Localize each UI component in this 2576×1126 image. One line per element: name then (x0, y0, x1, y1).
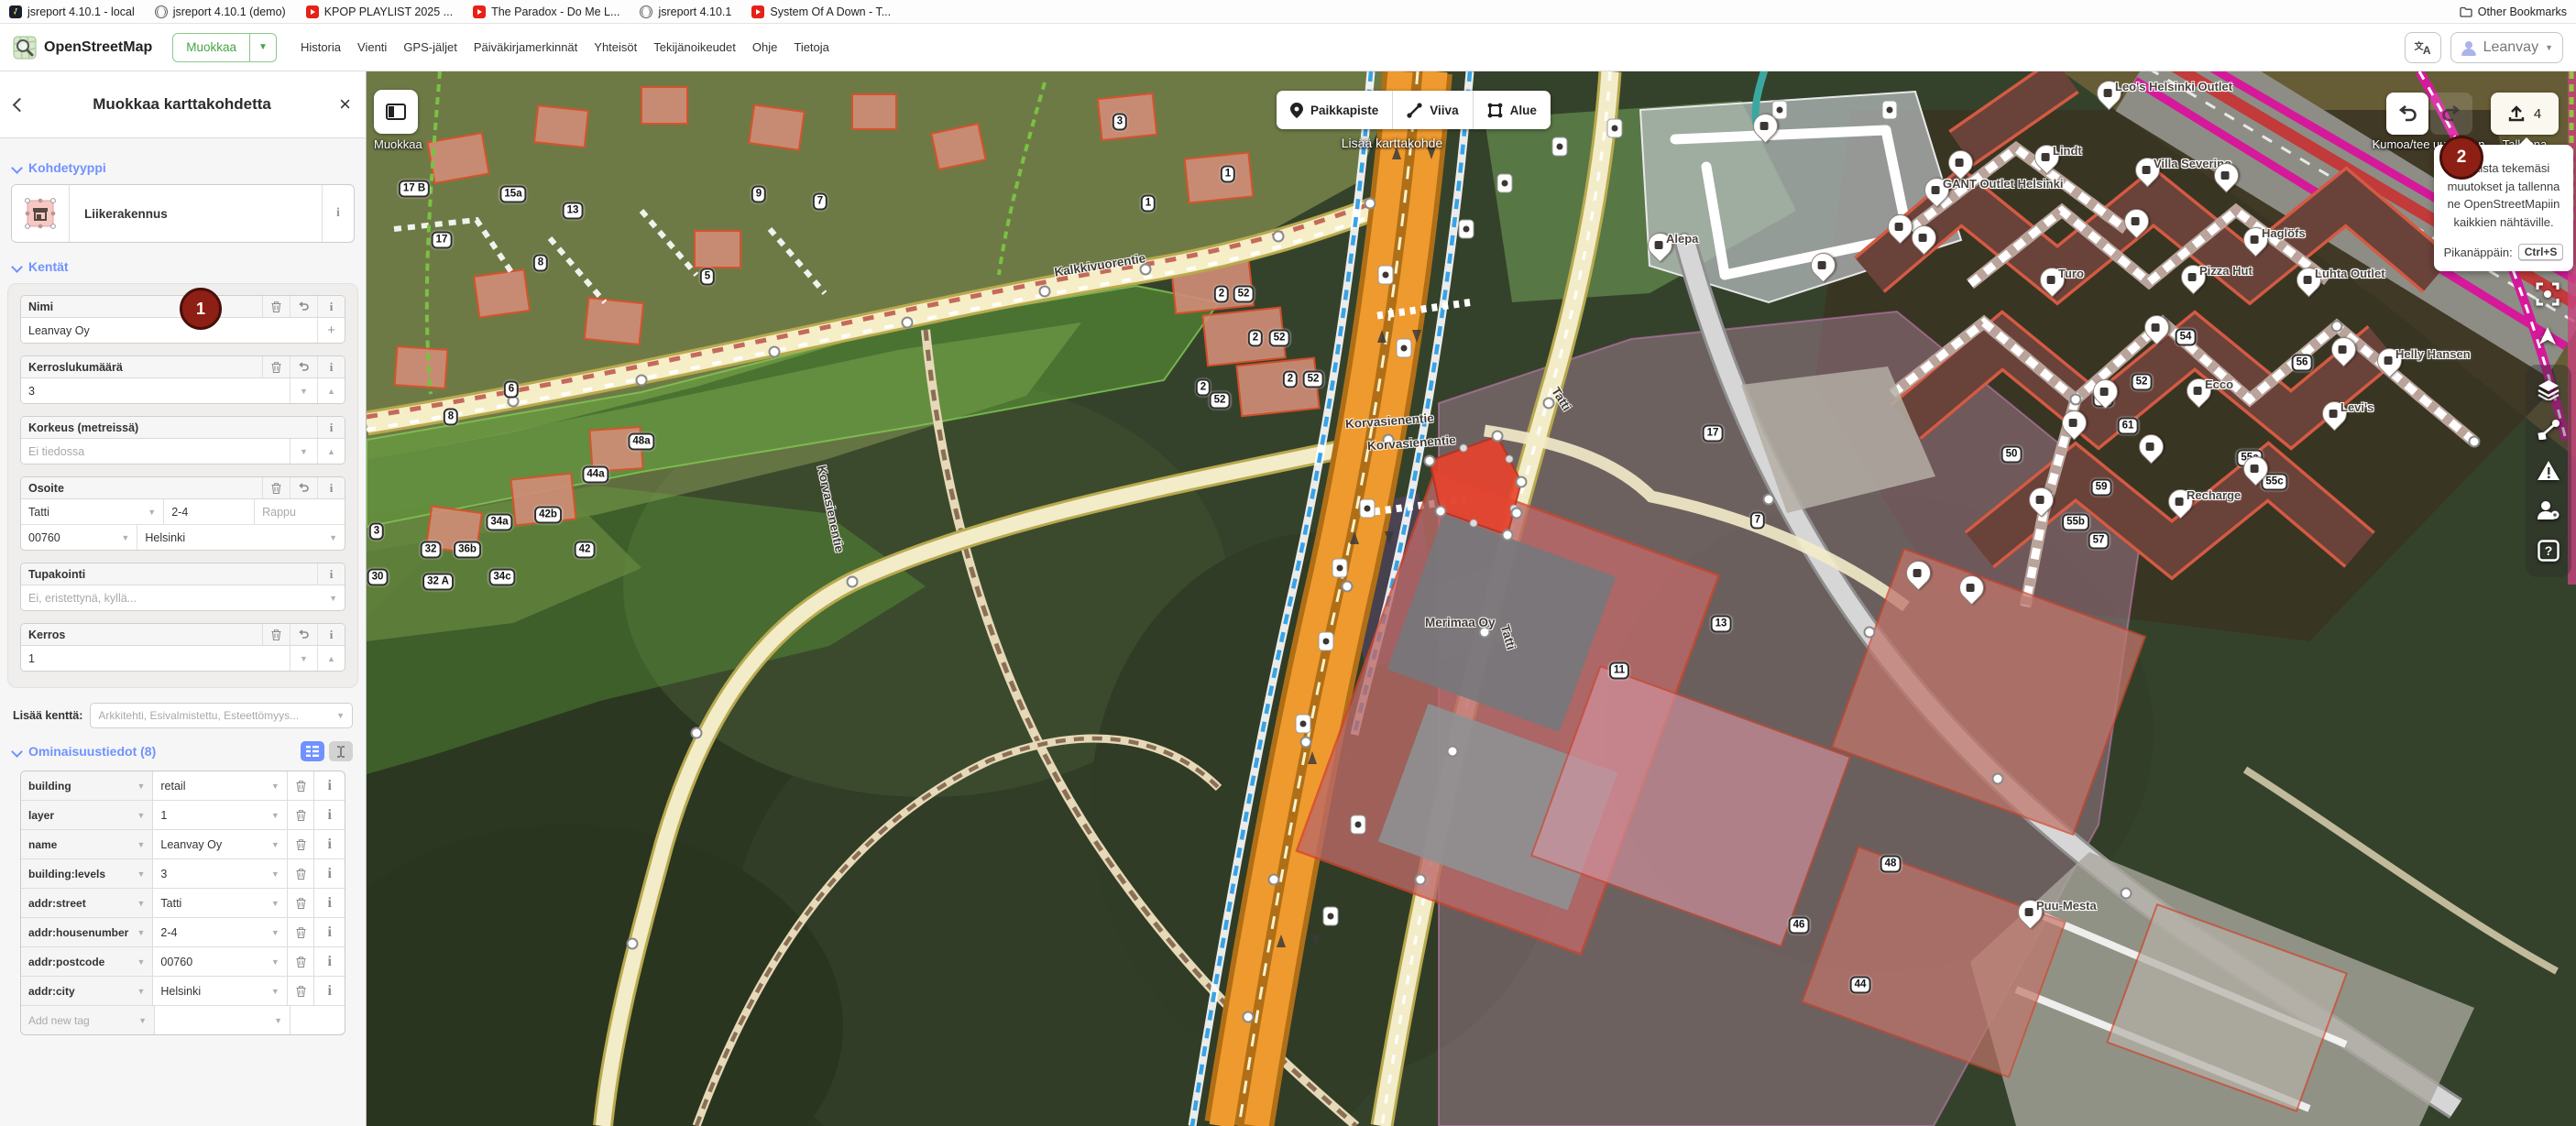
housenumber-badge: 42b (534, 507, 562, 524)
levels-input[interactable]: 3 (21, 378, 290, 403)
unit-input[interactable]: Rappu (255, 499, 345, 524)
bookmark-item[interactable]: jsreport 4.10.1 (demo) (155, 5, 286, 18)
chevron-down-icon: ▼ (2545, 43, 2553, 52)
section-feature-type[interactable]: Kohdetyyppi (13, 160, 353, 175)
delete-tag-button[interactable] (288, 918, 315, 946)
housenumber-badge: 42 (575, 541, 596, 559)
header-nav-item[interactable]: Tekijänoikeudet (653, 40, 736, 54)
bookmark-item[interactable]: System Of A Down - T... (751, 5, 891, 18)
housenumber-badge: 2 (1283, 371, 1298, 388)
add-field-label: Lisää kenttä: (13, 709, 82, 722)
housenumber-badge: 7 (813, 193, 828, 211)
chevron-down-icon (11, 746, 23, 758)
poi-label: Pizza Hut (2199, 264, 2253, 278)
walkthrough-step-1-badge: 1 (180, 288, 222, 330)
header-nav-item[interactable]: Historia (301, 40, 341, 54)
geolocate-button[interactable] (2527, 317, 2568, 355)
tag-table-view-button[interactable] (301, 741, 324, 761)
section-tags[interactable]: Ominaisuustiedot (8) (13, 744, 156, 759)
tag-row: layer▼1▼i (21, 801, 345, 830)
youtube-icon (473, 5, 486, 18)
bookmark-item[interactable]: jsreport 4.10.1 (640, 5, 731, 18)
upload-icon (2508, 105, 2525, 122)
point-icon (1290, 103, 1303, 118)
decrement-button[interactable]: ▼ (290, 378, 317, 403)
add-area-button[interactable]: Alue (1474, 91, 1551, 129)
zoom-to-selection-button[interactable] (2527, 275, 2568, 313)
undo-icon (2396, 105, 2418, 122)
housenumber-badge: 52 (2132, 374, 2153, 391)
housenumber-badge: 52 (1303, 371, 1324, 388)
tag-row: building:levels▼3▼i (21, 859, 345, 889)
housenumber-badge: 3 (369, 523, 384, 541)
delete-tag-button[interactable] (288, 947, 315, 976)
tag-row: addr:postcode▼00760▼i (21, 947, 345, 977)
name-input[interactable]: Leanvay Oy (21, 318, 317, 343)
housenumber-badge: 52 (1233, 286, 1255, 303)
shortcut-label: Pikanäppäin: (2444, 246, 2513, 259)
section-fields[interactable]: Kentät (13, 259, 353, 274)
translate-icon: 文A (2415, 40, 2431, 55)
street-label: Merimaa Oy (1425, 616, 1496, 629)
add-feature-toolbar: Paikkapiste Viiva Alue (1277, 91, 1551, 129)
line-icon (1407, 103, 1422, 118)
housenumber-badge: 11 (1609, 662, 1629, 680)
housenumber-input[interactable]: 2-4 (164, 499, 255, 524)
delete-tag-button[interactable] (288, 977, 315, 1005)
housenumber-badge: 13 (1711, 616, 1732, 633)
poi-label: Turo (2058, 267, 2084, 280)
other-bookmarks-button[interactable]: Other Bookmarks (2460, 5, 2567, 18)
tag-row: Add new tag▼▼ (21, 1006, 345, 1034)
field-building-levels: Kerroslukumäärä i 3 ▼ ▲ (20, 355, 345, 404)
poi-label: Luhta Outlet (2315, 267, 2385, 280)
youtube-icon (751, 5, 764, 18)
increment-button[interactable]: ▲ (317, 646, 345, 671)
preferences-button[interactable] (2528, 491, 2569, 530)
youtube-icon (306, 5, 319, 18)
tag-info-button[interactable]: i (314, 801, 345, 829)
openstreetmap-logo (13, 36, 37, 60)
increment-button[interactable]: ▲ (317, 378, 345, 403)
redo-button[interactable] (2430, 93, 2472, 135)
app-window: KalkkivuorentieKorvasienentieKorvasienen… (0, 0, 2576, 1126)
delete-tag-button[interactable] (288, 771, 315, 800)
tag-text-view-button[interactable] (329, 741, 353, 761)
tag-value-select[interactable]: Leanvay Oy▼ (153, 830, 287, 858)
delete-tag-button[interactable] (288, 859, 315, 888)
background-layers-button[interactable] (2528, 370, 2569, 409)
header-nav: HistoriaVientiGPS-jäljetPäiväkirjamerkin… (301, 40, 829, 54)
field-height: Korkeus (metreissä) i Ei tiedossa ▼ ▲ (20, 416, 345, 465)
preset-label: Liikerakennus (70, 185, 322, 242)
chevron-down-icon (11, 162, 23, 174)
postcode-select[interactable]: 00760▼ (21, 525, 137, 550)
tag-info-button[interactable]: i (314, 771, 345, 800)
housenumber-badge: 7 (1750, 512, 1765, 530)
tag-row: addr:street▼Tatti▼i (21, 889, 345, 918)
tag-value-select[interactable]: 00760▼ (153, 947, 287, 976)
edit-entity-panel: Muokkaa karttakohdetta × Kohdetyyppi (0, 71, 367, 1126)
tag-row: addr:city▼Helsinki▼i (21, 977, 345, 1006)
tag-row: addr:housenumber▼2-4▼i (21, 918, 345, 947)
housenumber-badge: 13 (563, 202, 584, 220)
tag-value-select[interactable]: Tatti▼ (153, 889, 287, 917)
edit-dropdown-caret[interactable]: ▼ (249, 34, 276, 61)
tag-key-select[interactable]: building:levels▼ (21, 859, 153, 888)
poi-label: Leo's Helsinki Outlet (2115, 80, 2232, 93)
tag-value-select[interactable]: 3▼ (153, 859, 287, 888)
svg-text:?: ? (2545, 543, 2553, 558)
globe-icon (640, 5, 652, 18)
housenumber-badge: 44a (582, 466, 608, 484)
housenumber-badge: 17 (432, 232, 453, 249)
field-info-button[interactable]: i (317, 296, 345, 317)
delete-field-button[interactable] (262, 624, 290, 645)
street-select[interactable]: Tatti▼ (21, 499, 164, 524)
poi-label: Alepa (1666, 232, 1698, 246)
housenumber-badge: 46 (1789, 917, 1810, 935)
housenumber-badge: 55b (2062, 514, 2089, 531)
level-input[interactable]: 1 (21, 646, 290, 671)
add-feature-hint: Lisää karttakohde (1277, 136, 1507, 150)
tag-row: name▼Leanvay Oy▼i (21, 830, 345, 859)
housenumber-badge: 2 (1248, 330, 1263, 347)
header-nav-item[interactable]: Päiväkirjamerkinnät (474, 40, 577, 54)
map-data-button[interactable] (2528, 410, 2569, 449)
tag-info-button[interactable]: i (314, 947, 345, 976)
housenumber-badge: 8 (444, 409, 458, 426)
sidebar-toggle-icon (386, 104, 406, 120)
poi-label: Recharge (2187, 488, 2241, 502)
issues-button[interactable] (2528, 451, 2569, 489)
undo-button[interactable] (2386, 93, 2428, 135)
delete-field-button[interactable] (262, 477, 290, 498)
height-input[interactable]: Ei tiedossa (21, 439, 290, 464)
city-select[interactable]: Helsinki▼ (137, 525, 345, 550)
poi-label: Lindt (2053, 144, 2082, 158)
panel-title: Muokkaa karttakohdetta (25, 95, 339, 114)
tag-table: building▼retail▼ilayer▼1▼iname▼Leanvay O… (20, 771, 345, 1035)
delete-tag-button[interactable] (288, 801, 315, 829)
sidebar-collapse-label: Muokkaa (374, 137, 418, 151)
tag-value-select[interactable]: 2-4▼ (153, 918, 287, 946)
tag-info-button[interactable]: i (314, 830, 345, 858)
poi-label: Levi's (2340, 400, 2373, 414)
header-nav-item[interactable]: Vienti (357, 40, 387, 54)
redo-icon (2440, 105, 2462, 122)
housenumber-badge: 9 (751, 186, 766, 203)
walkthrough-step-2-badge: 2 (2439, 136, 2483, 180)
tag-value-select[interactable]: retail▼ (153, 771, 287, 800)
smoking-select[interactable]: Ei, eristettynä, kyllä...▼ (21, 585, 345, 610)
osm-header: OpenStreetMap Muokkaa ▼ HistoriaVientiGP… (0, 24, 2576, 71)
housenumber-badge: 8 (533, 255, 548, 272)
avatar (2461, 39, 2477, 56)
tag-info-button[interactable]: i (314, 977, 345, 1005)
header-nav-item[interactable]: Ohje (752, 40, 777, 54)
housenumber-badge: 36b (454, 541, 481, 559)
add-language-button[interactable]: + (317, 318, 345, 343)
tag-value-select[interactable]: Helsinki▼ (153, 977, 287, 1005)
tag-key-select[interactable]: layer▼ (21, 801, 153, 829)
save-button[interactable]: 4 (2491, 93, 2559, 135)
brand-title: OpenStreetMap (44, 39, 152, 56)
edit-button-label[interactable]: Muokkaa (173, 34, 249, 61)
housenumber-badge: 5 (700, 268, 715, 286)
tag-info-button[interactable]: i (314, 889, 345, 917)
decrement-button[interactable]: ▼ (290, 439, 317, 464)
globe-icon (155, 5, 168, 18)
field-address: Osoite i Tatti▼ 2-4 Rappu 00760▼ Helsink… (20, 476, 345, 551)
jsreport-icon (9, 5, 22, 18)
field-level: Kerros i 1 ▼ ▲ (20, 623, 345, 672)
housenumber-badge: 48a (628, 433, 654, 451)
preset-info-button[interactable]: i (322, 185, 354, 242)
close-panel-button[interactable]: × (339, 93, 351, 116)
poi-label: Helly Hansen (2395, 347, 2471, 361)
tag-row: building▼retail▼i (21, 771, 345, 801)
header-nav-item[interactable]: Yhteisöt (594, 40, 637, 54)
tag-key-select[interactable]: addr:postcode▼ (21, 947, 153, 976)
delete-field-button[interactable] (262, 356, 290, 377)
bookmark-item[interactable]: KPOP PLAYLIST 2025 ... (306, 5, 453, 18)
revert-field-button[interactable] (290, 477, 317, 498)
housenumber-badge: 17 (1703, 425, 1724, 443)
field-info-button[interactable]: i (317, 624, 345, 645)
housenumber-badge: 56 (2292, 355, 2313, 372)
tag-info-button[interactable]: i (314, 918, 345, 946)
housenumber-badge: 50 (2001, 446, 2022, 464)
housenumber-badge: 34a (486, 514, 512, 531)
help-button[interactable]: ? (2528, 531, 2569, 570)
housenumber-badge: 52 (1269, 330, 1290, 347)
user-menu-button[interactable]: Leanvay ▼ (2450, 32, 2563, 63)
tag-info-button[interactable]: i (314, 859, 345, 888)
revert-field-button[interactable] (290, 356, 317, 377)
bookmark-item[interactable]: jsreport 4.10.1 - local (9, 5, 135, 18)
tag-value-select[interactable]: ▼ (155, 1006, 290, 1034)
bookmarks-bar: jsreport 4.10.1 - localjsreport 4.10.1 (… (0, 0, 2576, 24)
tag-key-select[interactable]: addr:street▼ (21, 889, 153, 917)
housenumber-badge: 34c (488, 569, 515, 586)
tag-key-select[interactable]: addr:housenumber▼ (21, 918, 153, 946)
delete-field-button[interactable] (262, 296, 290, 317)
housenumber-badge: 52 (1210, 392, 1231, 410)
field-info-button[interactable]: i (317, 563, 345, 585)
field-info-button[interactable]: i (317, 477, 345, 498)
revert-field-button[interactable] (290, 624, 317, 645)
housenumber-badge: 59 (2091, 479, 2112, 497)
delete-tag-button[interactable] (288, 830, 315, 858)
poi-label: Puu-Mesta (2036, 899, 2097, 913)
retail-building-icon (12, 185, 70, 242)
poi-label: Haglöfs (2262, 226, 2306, 240)
housenumber-badge: 30 (367, 569, 389, 586)
increment-button[interactable]: ▲ (317, 439, 345, 464)
housenumber-badge: 2 (1214, 286, 1229, 303)
save-count: 4 (2534, 106, 2541, 122)
header-nav-item[interactable]: Tietoja (794, 40, 829, 54)
field-info-button[interactable]: i (317, 356, 345, 377)
sidebar-collapse-button[interactable] (374, 90, 418, 134)
edit-split-button[interactable]: Muokkaa ▼ (172, 33, 277, 62)
housenumber-badge: 1 (1221, 166, 1235, 183)
tag-key-select[interactable]: building▼ (21, 771, 153, 800)
tag-key-select[interactable]: addr:city▼ (21, 977, 153, 1005)
tag-key-select[interactable]: name▼ (21, 830, 153, 858)
revert-field-button[interactable] (290, 296, 317, 317)
housenumber-badge: 6 (504, 381, 519, 399)
add-point-button[interactable]: Paikkapiste (1277, 91, 1393, 129)
header-nav-item[interactable]: GPS-jäljet (403, 40, 457, 54)
decrement-button[interactable]: ▼ (290, 646, 317, 671)
poi-label: Ecco (2205, 377, 2233, 391)
housenumber-badge: 32 A (422, 574, 454, 591)
housenumber-badge: 1 (1141, 195, 1156, 213)
housenumber-badge: 3 (1113, 114, 1127, 131)
housenumber-badge: 2 (1196, 379, 1211, 397)
delete-tag-button[interactable] (288, 889, 315, 917)
housenumber-badge: 44 (1850, 977, 1871, 994)
housenumber-badge: 15a (499, 186, 526, 203)
preset-button[interactable]: Liikerakennus i (11, 184, 355, 243)
housenumber-badge: 57 (2088, 532, 2110, 550)
language-button[interactable]: 文A (2405, 32, 2441, 63)
housenumber-badge: 48 (1880, 856, 1902, 873)
add-line-button[interactable]: Viiva (1393, 91, 1473, 129)
housenumber-badge: 32 (421, 541, 442, 559)
username: Leanvay (2483, 39, 2539, 56)
folder-icon (2460, 6, 2472, 17)
housenumber-badge: 17 B (399, 180, 430, 198)
field-info-button[interactable]: i (317, 417, 345, 438)
housenumber-badge: 54 (2176, 329, 2197, 346)
field-smoking: Tupakointi i Ei, eristettynä, kyllä...▼ (20, 563, 345, 611)
tag-key-select[interactable]: Add new tag▼ (21, 1006, 155, 1034)
area-icon (1487, 103, 1503, 118)
housenumber-badge: 61 (2118, 418, 2139, 435)
shortcut-key: Ctrl+S (2518, 244, 2564, 260)
tag-value-select[interactable]: 1▼ (153, 801, 287, 829)
add-field-select[interactable]: Arkkitehti, Esivalmistettu, Esteettömyys… (90, 703, 353, 728)
chevron-down-icon (11, 261, 23, 273)
bookmark-item[interactable]: The Paradox - Do Me L... (473, 5, 619, 18)
